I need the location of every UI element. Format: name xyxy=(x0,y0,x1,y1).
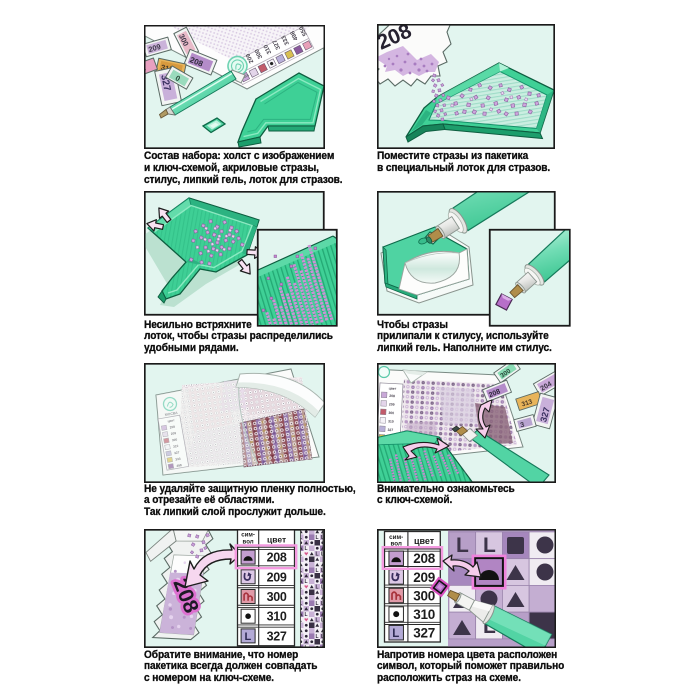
svg-text:цвет: цвет xyxy=(414,536,435,546)
svg-text:L: L xyxy=(456,534,469,557)
svg-text:209: 209 xyxy=(413,570,435,585)
svg-text:L: L xyxy=(245,631,252,643)
svg-text:209: 209 xyxy=(389,402,395,406)
svg-text:208: 208 xyxy=(267,551,287,565)
svg-text:300: 300 xyxy=(413,588,435,603)
svg-text:310: 310 xyxy=(388,419,394,423)
svg-text:327: 327 xyxy=(267,629,287,643)
svg-text:L: L xyxy=(483,534,496,557)
svg-text:327: 327 xyxy=(413,626,435,641)
svg-text:310: 310 xyxy=(267,610,287,624)
svg-text:300: 300 xyxy=(267,590,287,604)
svg-text:310: 310 xyxy=(413,607,435,622)
svg-text:300: 300 xyxy=(388,411,394,415)
svg-text:L: L xyxy=(392,628,399,640)
svg-text:208: 208 xyxy=(389,394,395,398)
svg-text:цвет: цвет xyxy=(267,534,286,544)
svg-text:цвет: цвет xyxy=(389,386,397,390)
svg-text:327: 327 xyxy=(387,428,393,432)
svg-text:209: 209 xyxy=(267,570,287,584)
svg-text:208: 208 xyxy=(413,551,435,566)
